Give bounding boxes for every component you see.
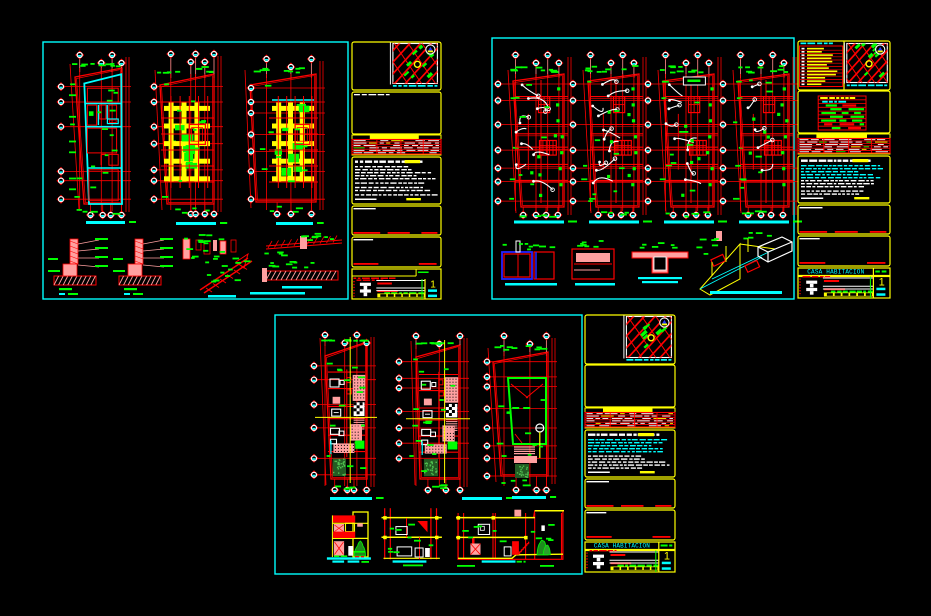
svg-text:CASA HABITACION: CASA HABITACION [807, 269, 864, 276]
svg-text:CASA HABITACION: CASA HABITACION [594, 543, 650, 550]
svg-text:1: 1 [664, 551, 670, 563]
svg-text:1: 1 [879, 277, 885, 289]
svg-text:1: 1 [430, 279, 436, 290]
